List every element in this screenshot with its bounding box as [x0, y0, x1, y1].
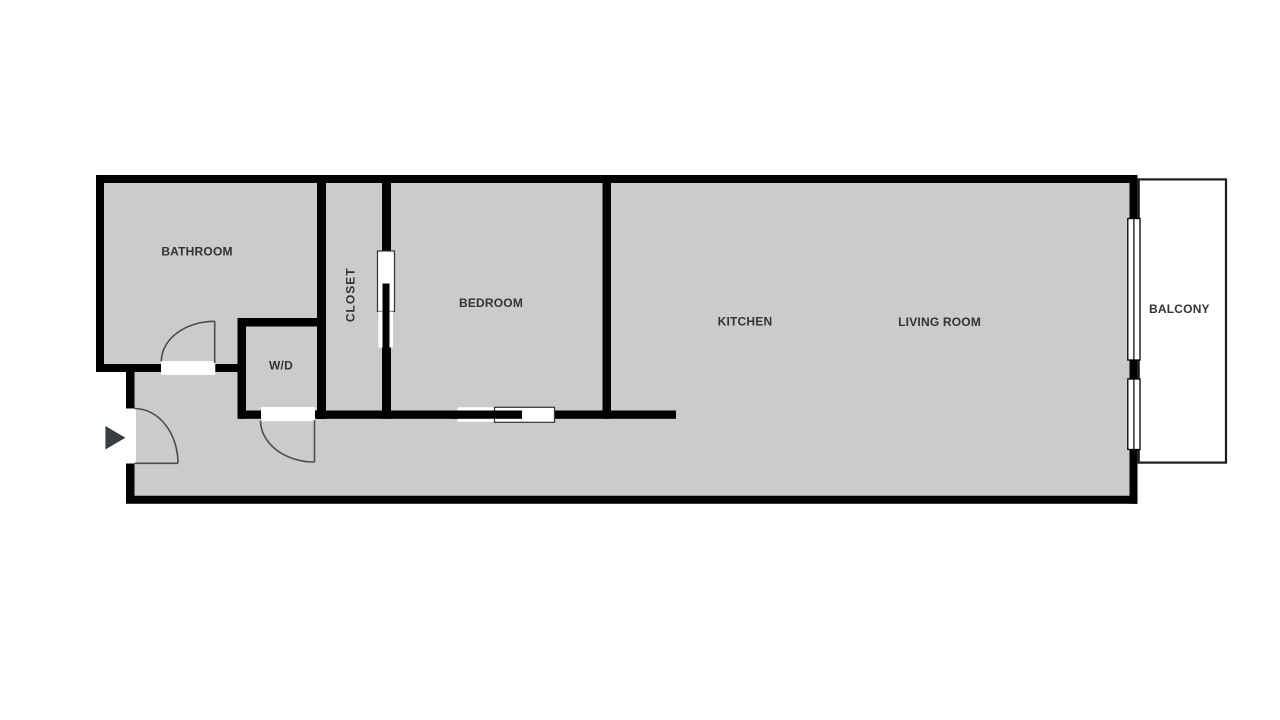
- svg-text:LIVING ROOM: LIVING ROOM: [898, 315, 981, 329]
- svg-text:BEDROOM: BEDROOM: [459, 296, 523, 310]
- svg-text:KITCHEN: KITCHEN: [718, 315, 773, 329]
- svg-text:CLOSET: CLOSET: [344, 267, 358, 322]
- svg-text:BATHROOM: BATHROOM: [161, 245, 232, 259]
- svg-text:W/D: W/D: [269, 359, 293, 373]
- svg-text:BALCONY: BALCONY: [1149, 302, 1210, 316]
